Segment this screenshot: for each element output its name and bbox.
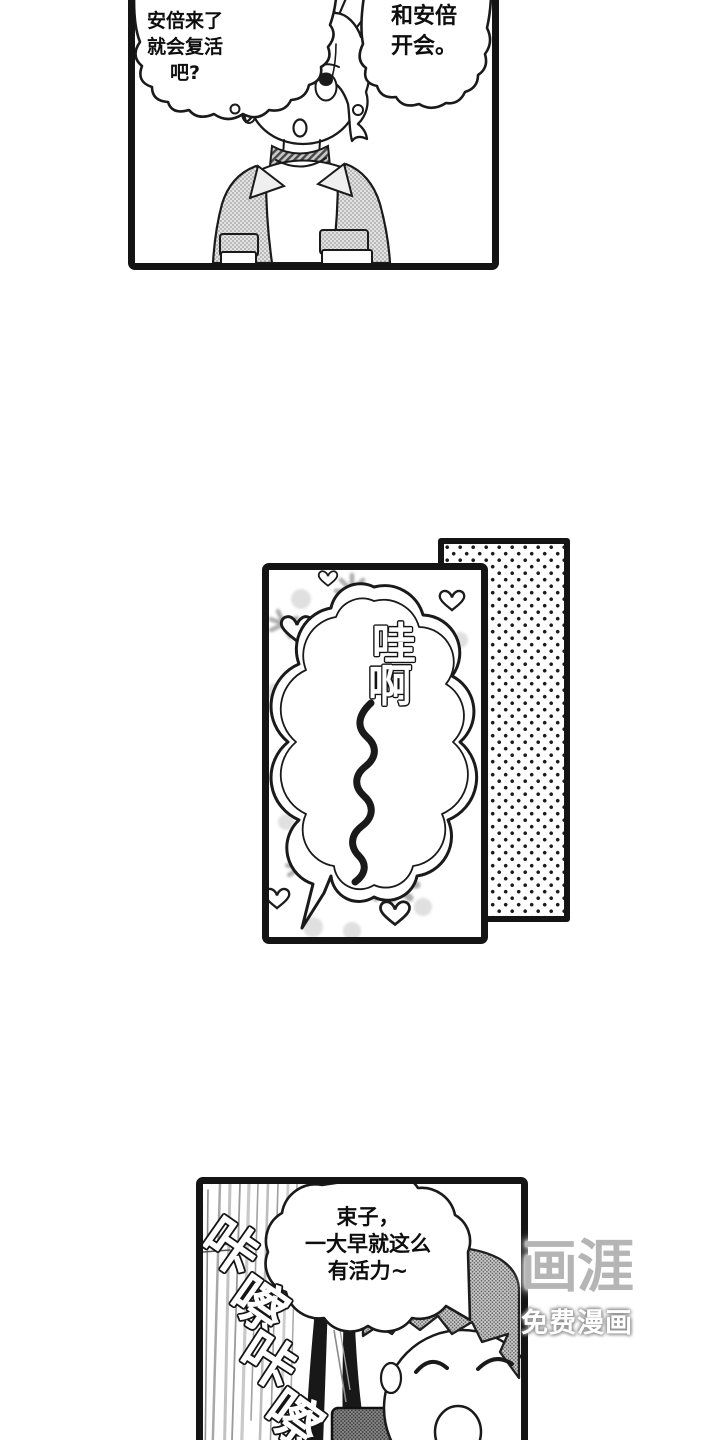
bubble-text-line: 一大早就这么 [258,1231,478,1258]
bubble-text-line: 安倍来了 [137,8,233,34]
watermark-logo: 画涯 [521,1238,633,1296]
watermark-tagline: 免费漫画 [521,1301,633,1340]
exclamation-bubble: 哇 啊 [271,584,477,928]
bubble-text-line: 有活力~ [258,1258,478,1285]
character-ear [381,1363,401,1393]
thought-bubble-right-text: 和安倍 开会。 [381,2,467,62]
heart-icon [440,591,464,610]
bubble-text-line: 和安倍 [381,2,467,32]
character-mouth [294,120,307,137]
heart-icon [380,902,409,925]
bubble-text-line: 束子， [258,1204,478,1231]
bubble-text-line: 就会复活 [137,34,233,60]
heart-icon [319,571,338,586]
exclamation-char: 啊 [368,661,412,712]
speech-bubble-text: 束子， 一大早就这么 有活力~ [258,1204,478,1285]
bubble-text-line: 开会。 [381,32,467,62]
watermark: 画涯 免费漫画 [521,1238,633,1340]
thought-bubble-left-text: 安倍来了 就会复活 吧? [137,8,233,86]
thought-trail-dot [353,105,363,115]
thought-trail-dot [231,105,240,114]
panel-bottom: 咔 嚓 咔 嚓 束子， 一大早就这么 有活力~ [196,1177,528,1440]
comic-page[interactable]: 安倍来了 就会复活 吧? 和安倍 开会。 [0,0,720,1440]
heart-icon [269,889,289,908]
panel-middle-artwork: 哇 啊 [269,570,481,937]
panel-middle: 哇 啊 [262,563,488,944]
panel-top: 安倍来了 就会复活 吧? 和安倍 开会。 [128,0,499,270]
bubble-text-line: 吧? [137,60,233,86]
